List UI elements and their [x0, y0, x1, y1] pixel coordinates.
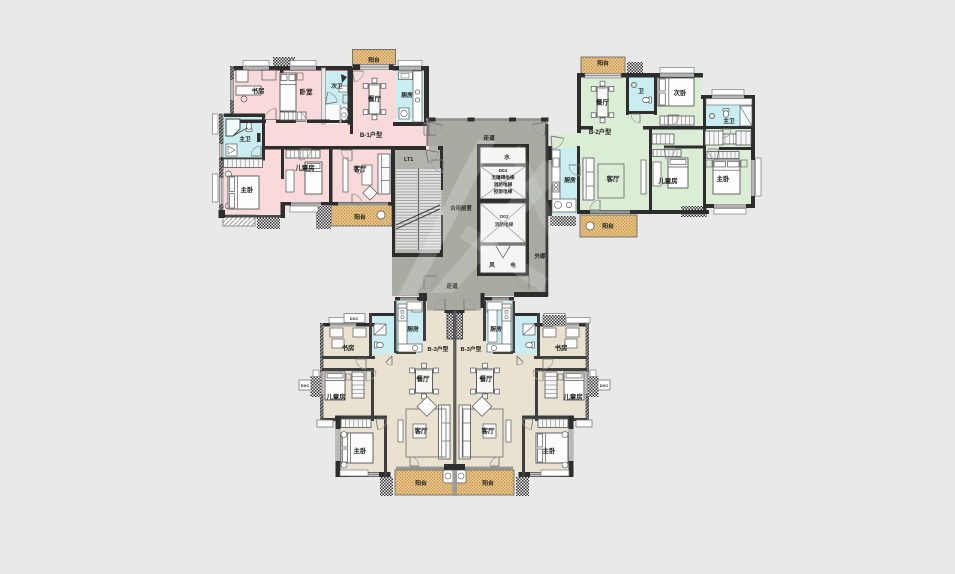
svg-text:儿童房: 儿童房	[562, 392, 583, 401]
svg-text:餐厅: 餐厅	[479, 374, 494, 383]
svg-text:B-1户型: B-1户型	[360, 131, 383, 139]
svg-text:无障碍电梯: 无障碍电梯	[491, 174, 515, 181]
svg-text:DXC: DXC	[600, 383, 609, 388]
svg-text:书房: 书房	[252, 86, 266, 95]
svg-text:阳台: 阳台	[597, 59, 609, 67]
svg-text:次卫: 次卫	[331, 82, 343, 90]
svg-text:主卧: 主卧	[241, 185, 255, 194]
svg-text:主卧: 主卧	[354, 446, 368, 455]
svg-text:厨房: 厨房	[407, 325, 419, 333]
svg-text:餐厅: 餐厅	[367, 94, 382, 103]
svg-text:厨房: 厨房	[401, 91, 413, 99]
svg-text:儿童房: 儿童房	[325, 392, 346, 401]
svg-text:次卧: 次卧	[674, 88, 688, 97]
svg-text:客厅: 客厅	[353, 164, 368, 173]
svg-text:担架电梯: 担架电梯	[494, 188, 513, 195]
svg-text:客厅: 客厅	[606, 174, 621, 183]
svg-text:儿童房: 儿童房	[294, 163, 315, 172]
svg-text:客厅: 客厅	[481, 426, 496, 435]
svg-text:DXC: DXC	[301, 383, 310, 388]
svg-text:DXC: DXC	[350, 316, 359, 321]
svg-text:LT1: LT1	[404, 157, 413, 163]
svg-text:B-3户型: B-3户型	[461, 345, 482, 353]
svg-text:主卧: 主卧	[717, 174, 731, 183]
svg-text:卧室: 卧室	[300, 87, 314, 96]
svg-text:D01: D01	[499, 168, 508, 174]
svg-text:卫: 卫	[638, 88, 644, 95]
svg-text:消防电梯: 消防电梯	[494, 181, 513, 188]
svg-text:阳台: 阳台	[602, 222, 614, 230]
svg-text:阳台: 阳台	[415, 479, 427, 487]
svg-text:外廊: 外廊	[535, 252, 546, 260]
svg-text:阳台: 阳台	[368, 56, 380, 64]
svg-text:主卫: 主卫	[723, 117, 735, 125]
svg-text:阳台: 阳台	[354, 213, 366, 221]
svg-text:阳台: 阳台	[482, 479, 494, 487]
svg-text:风: 风	[489, 261, 495, 269]
svg-text:B-3户型: B-3户型	[428, 345, 449, 353]
svg-text:儿童房: 儿童房	[657, 176, 678, 185]
svg-text:厨房: 厨房	[564, 176, 576, 184]
svg-text:主卫: 主卫	[239, 135, 251, 143]
svg-text:厨房: 厨房	[490, 325, 502, 333]
svg-text:餐厅: 餐厅	[595, 98, 610, 107]
svg-text:B-2户型: B-2户型	[589, 128, 612, 136]
svg-text:书房: 书房	[555, 343, 569, 352]
svg-text:餐厅: 餐厅	[416, 374, 431, 383]
svg-text:书房: 书房	[342, 343, 356, 352]
svg-text:主卧: 主卧	[543, 446, 557, 455]
svg-text:客厅: 客厅	[414, 426, 429, 435]
